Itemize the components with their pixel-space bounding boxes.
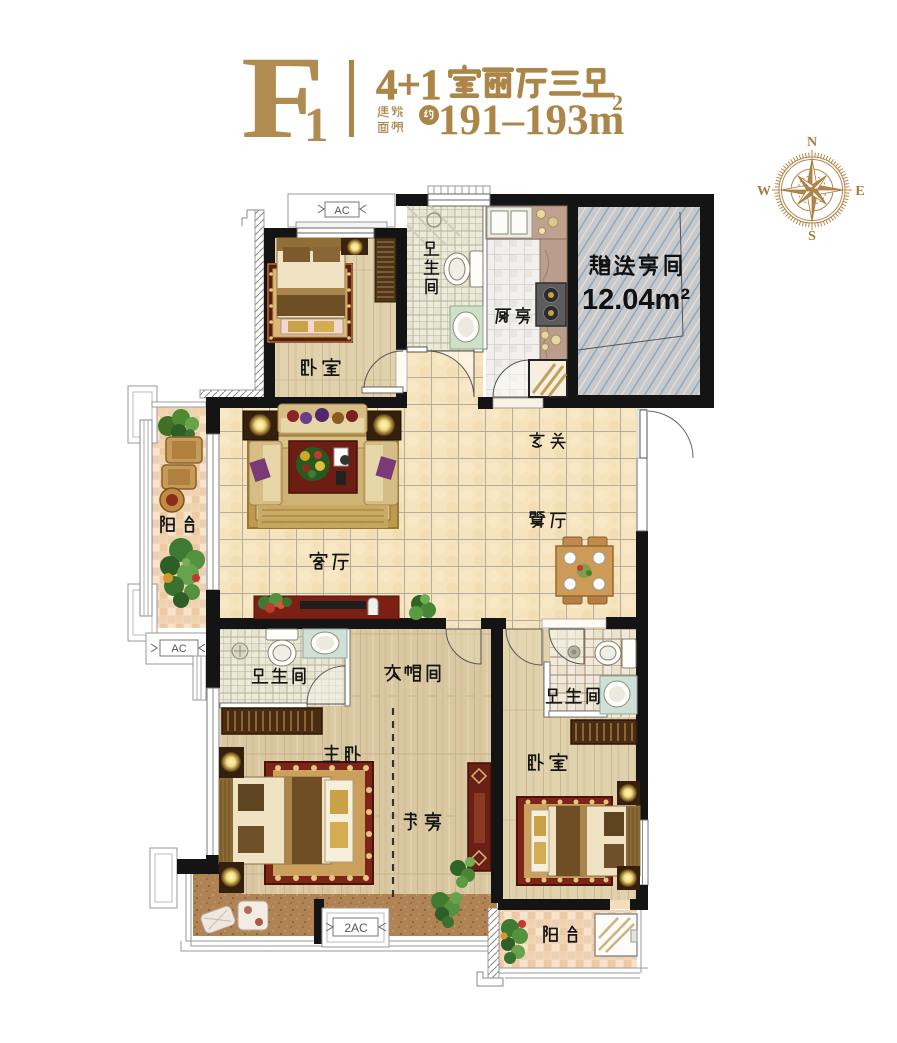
svg-text:2AC: 2AC	[344, 921, 368, 935]
svg-text:AC: AC	[171, 643, 186, 655]
svg-text:2: 2	[612, 90, 623, 115]
svg-text:N: N	[807, 135, 817, 150]
svg-text:1: 1	[304, 97, 329, 152]
svg-text:W: W	[757, 184, 771, 199]
svg-text:191–193m: 191–193m	[438, 97, 625, 144]
svg-text:4+1: 4+1	[376, 62, 441, 109]
svg-text:S: S	[808, 229, 816, 244]
svg-text:E: E	[855, 184, 864, 199]
svg-text:AC: AC	[334, 205, 349, 217]
svg-text:12.04m²: 12.04m²	[582, 284, 690, 316]
